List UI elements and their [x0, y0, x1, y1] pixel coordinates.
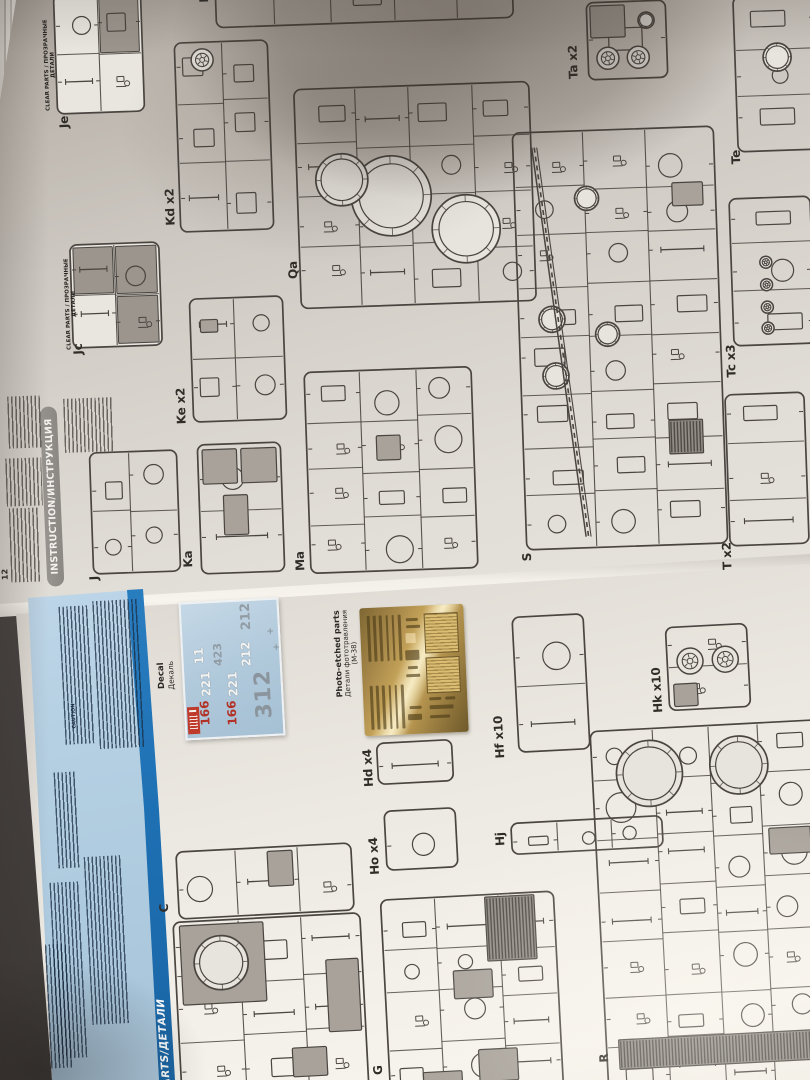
sprue-drawing: [511, 125, 730, 552]
sprue-frame-r: [588, 718, 810, 1080]
photo-etched-label: Photo-etched parts Детали фототравления …: [331, 598, 361, 709]
sprue-label-kex2: Ke x2: [172, 361, 193, 452]
sprue-drawing: [382, 806, 459, 872]
sprue-drawing: [510, 612, 591, 754]
decal-number: 423: [210, 632, 225, 677]
decal-label: Decal Декаль: [156, 653, 177, 698]
pe-etch-detail: [406, 674, 420, 678]
pe-etch-detail: [406, 625, 420, 629]
pe-etch-detail: [445, 696, 455, 699]
sprue-label-ma: Ma: [291, 516, 312, 607]
sprue-label-te: Te: [727, 112, 748, 203]
sprue-drawing: [379, 890, 565, 1080]
sprue-frame-ka: [196, 441, 287, 576]
pe-etch-detail: [408, 714, 422, 721]
sprue-drawing: [174, 841, 355, 920]
sprue-label-ka: Ka: [179, 514, 200, 605]
sprue-drawing: [302, 365, 479, 575]
sprue-frame-qa: [292, 80, 538, 310]
sprue-frame: [171, 911, 370, 1080]
sprue-frame-hox4: [382, 806, 459, 872]
sprue-frame-c: [174, 841, 355, 920]
sprue-label-kdx2: Kd x2: [161, 162, 182, 253]
fine-print-text-block: [63, 397, 115, 453]
pe-etch-detail: [410, 706, 422, 710]
decal-number: 312: [250, 674, 277, 719]
fine-print-text-block: [5, 457, 43, 506]
pe-etch-detail: [424, 612, 460, 653]
sprue-label-jc: Jc: [69, 304, 90, 395]
sprue-label-j: J: [85, 533, 106, 624]
sprue-drawing: [196, 441, 287, 576]
sprue-frame-hkx10: [664, 622, 752, 712]
sprue-drawing: [173, 38, 276, 233]
photo-of-instruction-booklet: INSTRUCTION/ИНСТРУКЦИЯ CLEAR PARTS / ПРО…: [0, 0, 810, 1080]
sprue-frame-hdx4: [375, 738, 455, 786]
fine-print-text-block: [9, 507, 42, 582]
sprue-frame-ma: [302, 365, 479, 575]
pe-etch-detail: [405, 650, 419, 661]
sprue-frame-kex2: [188, 294, 288, 423]
decal-number: 166: [197, 691, 213, 736]
sprue-frame-tax2: [585, 0, 670, 81]
sprue-label-tcx3: Tc x3: [722, 316, 743, 407]
sprue-frame-kdx2: [173, 38, 276, 233]
sprue-drawing: [585, 0, 670, 81]
sprue-label-k: K: [195, 0, 216, 43]
pe-etch-detail: [425, 656, 461, 693]
sprue-label-s: S: [518, 512, 539, 603]
sprue-frame-g: [379, 890, 565, 1080]
sprue-drawing: [188, 294, 288, 423]
decal-label-ru: Декаль: [166, 653, 177, 697]
sprue-frame-s: [511, 125, 730, 552]
fine-print-text-block: [7, 395, 43, 448]
page-number: 12: [0, 564, 10, 584]
decal-number: 166: [224, 691, 240, 736]
pe-etch-detail: [406, 618, 418, 622]
sprue-label-tx2: T x2: [718, 511, 739, 602]
sprue-label-qa: Qa: [284, 225, 305, 316]
sprue-drawing: [375, 738, 455, 786]
pe-etch-detail: [405, 633, 415, 643]
sprue-frame-hfx10: [510, 612, 591, 754]
sprue-drawing: [664, 622, 752, 712]
pe-etch-detail: [429, 697, 441, 701]
pe-etch-detail: [408, 666, 418, 669]
photo-etched-fret: [359, 604, 468, 736]
sprue-label-tax2: Ta x2: [564, 17, 585, 108]
sprue-drawing: [292, 80, 538, 310]
sprue-label-je: Je: [55, 77, 76, 168]
sprue-drawing: [588, 718, 810, 1080]
sprue-drawing: [171, 911, 370, 1080]
